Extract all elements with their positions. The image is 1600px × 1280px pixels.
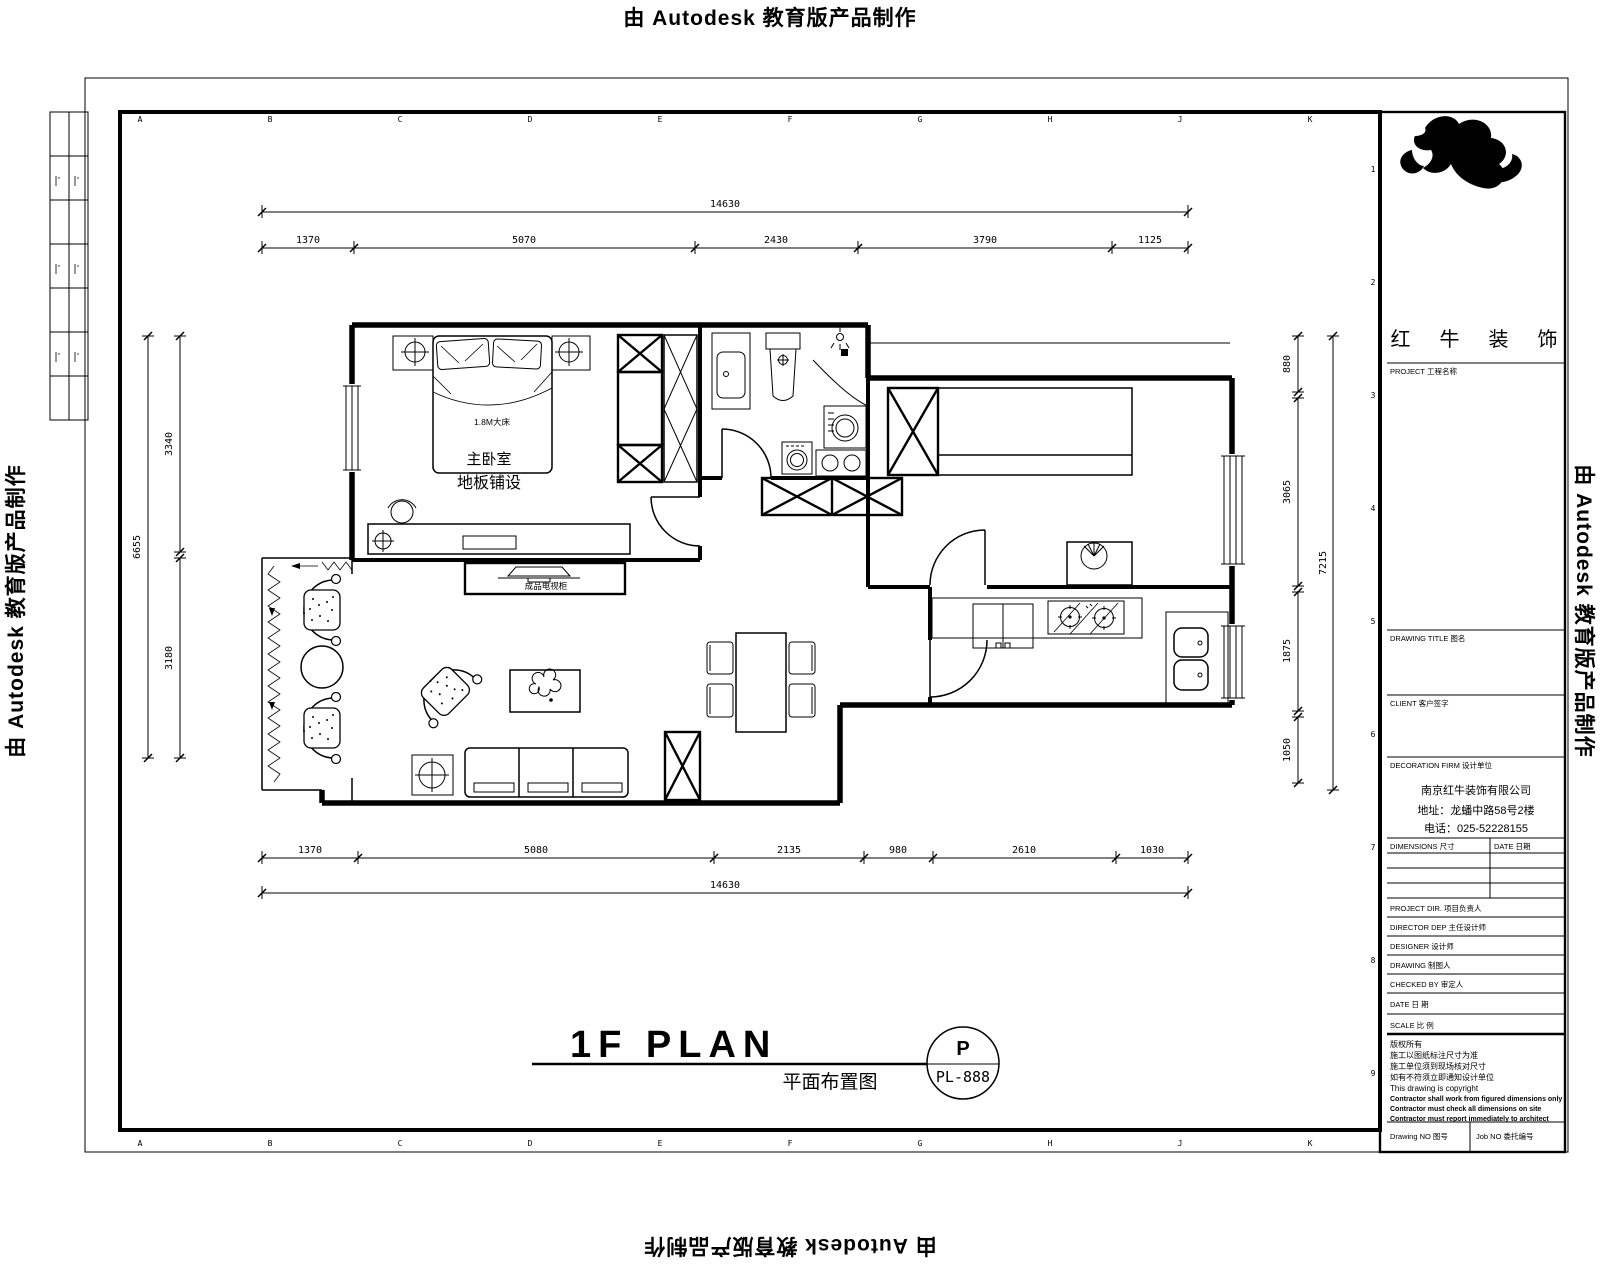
bed-size-label: 1.8M大床 [474, 417, 510, 427]
tb-client-label: CLIENT 客户签字 [1390, 698, 1449, 708]
svg-text:D: D [528, 115, 533, 124]
title-block: 红 牛 装 饰 PROJECT 工程名称 DRAWING TITLE 图名 CL… [1380, 112, 1570, 1152]
svg-text:Contractor shall work from fig: Contractor shall work from figured dimen… [1390, 1096, 1562, 1103]
svg-text:版权所有: 版权所有 [1390, 1039, 1422, 1049]
svg-text:6: 6 [1371, 730, 1376, 739]
tb-firm-phone: 电话：025-52228155 [1424, 822, 1528, 835]
coffee-table [510, 669, 580, 712]
svg-text:5: 5 [1371, 617, 1376, 626]
svg-text:1125: 1125 [1138, 235, 1162, 246]
svg-text:E: E [658, 1139, 663, 1148]
svg-text:F: F [788, 1139, 793, 1148]
svg-text:施工单位须到现场核对尺寸: 施工单位须到现场核对尺寸 [1390, 1061, 1486, 1071]
living-room: 成品电视柜 [407, 563, 628, 797]
dryer [824, 406, 866, 448]
svg-text:4: 4 [1371, 504, 1376, 513]
washing-machine [782, 442, 812, 474]
tv-cabinet-label: 成品电视柜 [525, 581, 568, 591]
kitchen-counter [932, 598, 1142, 638]
sofa [465, 748, 628, 797]
sheet-frame [50, 78, 1568, 1152]
svg-text:3: 3 [1371, 391, 1376, 400]
svg-text:C: C [398, 1139, 403, 1148]
hall-cabinet [762, 478, 902, 515]
svg-text:5080: 5080 [524, 845, 548, 856]
svg-text:1370: 1370 [296, 235, 320, 246]
tb-dimensions-label: DIMENSIONS 尺寸 [1390, 841, 1455, 851]
svg-text:K: K [1308, 115, 1313, 124]
room-label-master: 主卧室 [466, 451, 511, 468]
svg-text:1050: 1050 [1282, 738, 1293, 762]
logo: 红 牛 装 饰 [1391, 116, 1570, 351]
side-table-lamp [412, 755, 453, 795]
ceiling-lamp-icon [401, 338, 583, 366]
svg-text:D: D [528, 1139, 533, 1148]
svg-text:J: J [1178, 1139, 1183, 1148]
tb-director: DIRECTOR DEP 主任设计师 [1390, 922, 1486, 932]
svg-text:Contractor must check all dime: Contractor must check all dimensions on … [1390, 1106, 1541, 1113]
dining-chairs [707, 642, 815, 717]
svg-text:7: 7 [1371, 843, 1376, 852]
balcony-armchair-2 [303, 693, 341, 764]
svg-text:880: 880 [1282, 355, 1293, 373]
svg-text:2: 2 [1371, 278, 1376, 287]
dresser-bench [463, 536, 516, 549]
tb-firm-address: 地址：龙蟠中路58号2楼 [1417, 803, 1534, 817]
plan-title-en: 1F PLAN [570, 1024, 777, 1066]
fold-mark-strip [50, 112, 88, 420]
svg-text:A: A [138, 1139, 143, 1148]
nightstand-left [393, 336, 433, 370]
svg-text:如有不符须立即通知设计单位: 如有不符须立即通知设计单位 [1390, 1072, 1494, 1082]
svg-text:B: B [268, 115, 273, 124]
tb-project-label: PROJECT 工程名称 [1390, 366, 1457, 376]
svg-text:1030: 1030 [1140, 845, 1164, 856]
svg-text:3340: 3340 [164, 432, 175, 456]
svg-text:2135: 2135 [777, 845, 801, 856]
wardrobe [618, 335, 697, 482]
tb-designer: DESIGNER 设计师 [1390, 941, 1454, 951]
svg-text:C: C [398, 115, 403, 124]
badge-code: PL-888 [936, 1068, 990, 1086]
balcony-round-table [301, 646, 343, 688]
tb-job-no: Job NO 委托编号 [1476, 1131, 1534, 1141]
svg-text:G: G [918, 115, 923, 124]
svg-text:H: H [1048, 1139, 1053, 1148]
svg-text:6655: 6655 [132, 535, 143, 559]
tb-scale: SCALE 比 例 [1390, 1020, 1434, 1030]
shower [813, 327, 868, 406]
svg-text:A: A [138, 115, 143, 124]
svg-text:1370: 1370 [298, 845, 322, 856]
svg-text:3790: 3790 [973, 235, 997, 246]
tb-drawing: DRAWING 制图人 [1390, 960, 1451, 970]
svg-text:8: 8 [1371, 956, 1376, 965]
lamp-icon [372, 530, 394, 552]
tb-drawing-no: Drawing NO 图号 [1390, 1132, 1448, 1141]
nightstand-right [552, 336, 590, 370]
svg-text:1: 1 [1371, 165, 1376, 174]
tb-date-row: DATE 日 期 [1390, 1000, 1429, 1009]
tb-firm-name: 南京红牛装饰有限公司 [1421, 783, 1531, 797]
badge-letter: P [956, 1038, 969, 1060]
svg-text:2610: 2610 [1012, 845, 1036, 856]
svg-text:5070: 5070 [512, 235, 536, 246]
floor-plan-sheet: ABCDEFGHJK ABCDEFGHJK 123456789 14630 13… [0, 0, 1600, 1280]
toilet [766, 333, 800, 401]
svg-text:Contractor must report immedia: Contractor must report immediately to ar… [1390, 1116, 1549, 1123]
svg-text:980: 980 [889, 845, 907, 856]
duct-shaft [665, 732, 700, 800]
plan-title: 1F PLAN 平面布置图 P PL-888 [532, 1024, 999, 1099]
tb-date-label: DATE 日期 [1494, 842, 1531, 851]
svg-text:J: J [1178, 115, 1183, 124]
dining-table [736, 633, 786, 732]
svg-text:2430: 2430 [764, 235, 788, 246]
svg-text:F: F [788, 115, 793, 124]
sink [1166, 612, 1228, 703]
plan-title-cn: 平面布置图 [782, 1071, 877, 1093]
dining-area [665, 633, 815, 800]
svg-text:14630: 14630 [710, 880, 740, 891]
wardrobe-2 [888, 388, 938, 475]
desk [1067, 542, 1132, 585]
balcony [268, 562, 352, 782]
bath-cabinet [816, 450, 866, 476]
kitchen [932, 598, 1228, 703]
tb-project-dir: PROJECT DIR. 项目负责人 [1390, 903, 1482, 913]
svg-text:G: G [918, 1139, 923, 1148]
master-bedroom: 1.8M大床 主卧室 地板铺设 [368, 335, 697, 554]
room-label-floor: 地板铺设 [457, 474, 521, 492]
svg-text:E: E [658, 115, 663, 124]
svg-text:K: K [1308, 1139, 1313, 1148]
svg-text:H: H [1048, 115, 1053, 124]
tb-checked: CHECKED BY 审定人 [1390, 979, 1464, 989]
stool [388, 500, 416, 523]
vanity [712, 333, 750, 409]
tb-notes: 版权所有 施工以图纸标注尺寸为准 施工单位须到现场核对尺寸 如有不符须立即通知设… [1390, 1039, 1562, 1123]
svg-text:B: B [268, 1139, 273, 1148]
desk-chair [1081, 542, 1107, 569]
tb-drawing-title-label: DRAWING TITLE 图名 [1390, 633, 1465, 643]
balcony-armchair-1 [303, 575, 341, 646]
dim-top-total: 14630 [710, 199, 740, 210]
svg-text:9: 9 [1371, 1069, 1376, 1078]
tb-firm-label: DECORATION FIRM 设计单位 [1390, 760, 1492, 770]
svg-text:3065: 3065 [1282, 480, 1293, 504]
logo-text: 红 牛 装 饰 [1391, 328, 1570, 351]
dimensions: 14630 1370 5070 2430 3790 1125 1370 5080… [132, 199, 1339, 899]
bathroom [712, 327, 868, 476]
svg-text:3180: 3180 [164, 646, 175, 670]
fridge [973, 604, 1033, 648]
single-bed [938, 388, 1132, 475]
grid-numbers-right: 123456789 [1371, 165, 1376, 1078]
armchair [407, 653, 484, 730]
svg-text:施工以图纸标注尺寸为准: 施工以图纸标注尺寸为准 [1390, 1050, 1478, 1060]
svg-text:1875: 1875 [1282, 639, 1293, 663]
svg-text:This drawing is copyright: This drawing is copyright [1390, 1084, 1479, 1093]
svg-text:7215: 7215 [1318, 551, 1329, 575]
second-bedroom [888, 388, 1132, 585]
stove [1048, 601, 1124, 634]
